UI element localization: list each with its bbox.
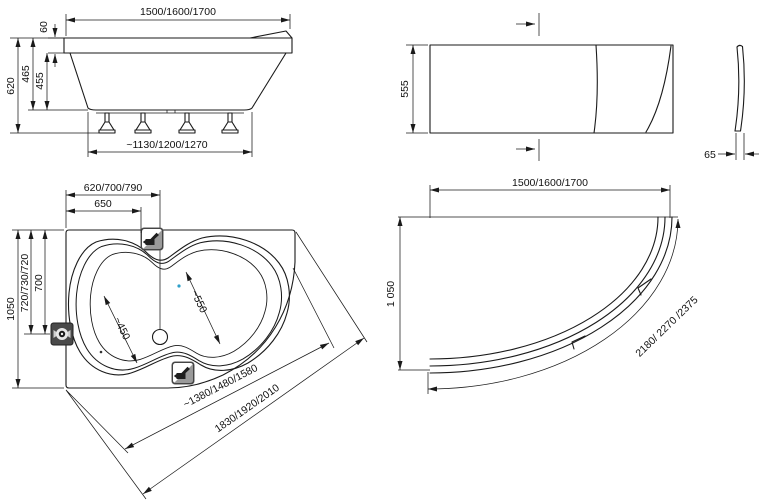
dim-side-depth-inner: 455 <box>34 72 46 90</box>
tub-rim <box>64 38 292 53</box>
tub-headrest <box>250 31 292 38</box>
panel-outline <box>430 45 673 133</box>
technical-drawing-page: 1500/1600/1700 60 620 465 455 ~1130/1200… <box>0 0 759 500</box>
plan-view: 620/700/790 650 1050 720/730/720 700 ~45… <box>5 182 367 499</box>
jet-dot-2 <box>100 351 103 354</box>
front-panel-view: 555 65 <box>399 13 759 161</box>
tub-shell <box>70 53 286 110</box>
dim-panel-height: 555 <box>399 80 411 98</box>
dim-side-total-height: 620 <box>5 77 17 95</box>
dim-side-length: 1500/1600/1700 <box>140 6 216 18</box>
dim-plan-drain-offset: 700 <box>33 274 45 292</box>
technical-drawing: 1500/1600/1700 60 620 465 455 ~1130/1200… <box>0 0 759 500</box>
dim-apron-length: 1500/1600/1700 <box>512 177 588 189</box>
dim-panel-thickness: 65 <box>704 149 716 161</box>
apron-plan-view: 2180/ 2270 /2375 1500/1600/1700 1 050 <box>385 177 701 394</box>
dim-side-depth-outer: 465 <box>20 65 32 83</box>
tub-legs <box>99 113 238 133</box>
panel-side-profile <box>735 45 744 131</box>
dim-apron-width: 1 050 <box>385 281 397 307</box>
side-elevation-view: 1500/1600/1700 60 620 465 455 ~1130/1200… <box>5 6 292 157</box>
dim-plan-faucet-offset: 650 <box>94 198 112 210</box>
dim-side-rim-height: 60 <box>38 21 50 33</box>
drain-overflow-icon <box>51 323 73 345</box>
dim-plan-height: 1050 <box>5 297 17 321</box>
faucet-icon <box>172 362 194 384</box>
dim-side-base-length: ~1130/1200/1270 <box>126 139 207 151</box>
jet-dot <box>177 284 180 287</box>
dim-plan-overflow-offset: 720/730/720 <box>19 254 31 313</box>
apron-step <box>638 279 651 295</box>
dim-apron-curve-length: 2180/ 2270 /2375 <box>633 294 700 360</box>
faucet-icon <box>141 228 163 250</box>
dim-plan-width-top: 620/700/790 <box>84 182 143 194</box>
